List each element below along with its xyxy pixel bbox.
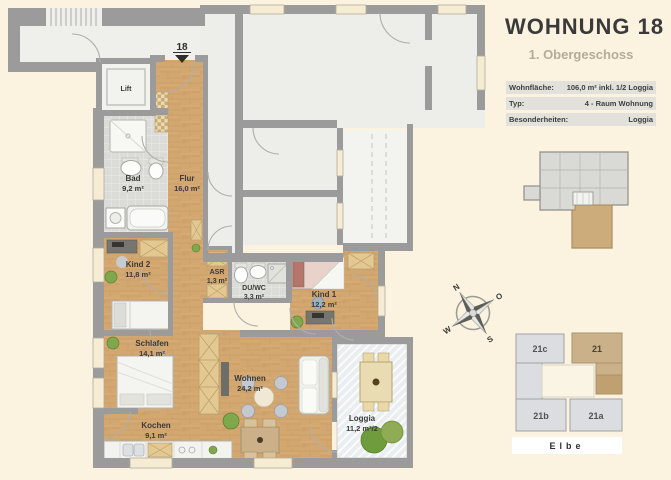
- room-label-kochen-name: Kochen: [141, 421, 170, 430]
- room-label-duwc-area: 3,3 m²: [244, 294, 265, 301]
- room-label-schlafen-area: 14,1 m²: [139, 349, 165, 358]
- neighbor-apartment-floors: [14, 13, 485, 253]
- room-label-bad-area: 9,2 m²: [122, 184, 144, 193]
- compass-north-label: N: [452, 282, 462, 293]
- floor-plan: Lift Bad 9,2 m² Flur 16,0 m² Kind 2 11,8…: [0, 0, 490, 480]
- info-value: 4 - Raum Wohnung: [585, 99, 653, 108]
- room-label-kind1-area: 12,2 m²: [311, 300, 337, 309]
- room-label-loggia-area: 11,2 m²/2: [346, 424, 378, 433]
- entrance-number: 18: [176, 42, 188, 53]
- room-label-flur-name: Flur: [179, 174, 194, 183]
- room-label-schlafen-name: Schlafen: [135, 339, 168, 348]
- room-label-kind2-area: 11,8 m²: [125, 270, 151, 279]
- room-label-asr-area: 1,3 m²: [207, 278, 228, 285]
- room-label-loggia-name: Loggia: [349, 414, 376, 423]
- site-building-west-wing: [516, 363, 542, 399]
- site-building-21-unit: [596, 375, 622, 394]
- page-title: WOHNUNG 18: [505, 14, 657, 40]
- info-label: Besonderheiten:: [509, 115, 568, 124]
- kitchen-counter: [104, 441, 232, 459]
- room-label-wohnen-area: 24,2 m²: [237, 384, 263, 393]
- site-label-21a: 21a: [588, 411, 604, 421]
- room-label-flur-area: 16,0 m²: [174, 184, 200, 193]
- compass-star-icon: [438, 278, 507, 347]
- compass-south-label: S: [485, 334, 495, 345]
- room-label-duwc-name: DU/WC: [242, 285, 266, 292]
- key-plan-highlight-unit: [572, 205, 612, 248]
- room-label-kind2-name: Kind 2: [126, 260, 151, 269]
- title-block: WOHNUNG 18 1. Obergeschoss: [505, 14, 657, 62]
- room-label-wohnen-name: Wohnen: [234, 374, 266, 383]
- info-table: Wohnfläche: 106,0 m² inkl. 1/2 Loggia Ty…: [506, 81, 656, 129]
- compass-east-label: O: [494, 291, 504, 302]
- compass-west-label: W: [442, 324, 454, 336]
- site-label-21b: 21b: [533, 411, 549, 421]
- schlafen-wardrobe-strip: [199, 334, 219, 414]
- staircase: [46, 8, 102, 26]
- room-label-bad-name: Bad: [125, 174, 140, 183]
- info-row-wohnflaeche: Wohnfläche: 106,0 m² inkl. 1/2 Loggia: [506, 81, 656, 94]
- room-label-asr-name: ASR: [210, 269, 225, 276]
- site-courtyard: [542, 365, 594, 397]
- room-label-kind1-name: Kind 1: [312, 290, 337, 299]
- compass-rose: N O S W: [436, 276, 510, 350]
- site-label-21c: 21c: [532, 344, 547, 354]
- page-subtitle: 1. Obergeschoss: [505, 47, 657, 62]
- room-label-lift: Lift: [121, 86, 133, 93]
- info-value: 106,0 m² inkl. 1/2 Loggia: [567, 83, 653, 92]
- info-label: Typ:: [509, 99, 524, 108]
- info-value: Loggia: [628, 115, 653, 124]
- floorplan-sheet: Lift Bad 9,2 m² Flur 16,0 m² Kind 2 11,8…: [0, 0, 671, 480]
- room-label-kochen-area: 9,1 m²: [145, 431, 167, 440]
- info-label: Wohnfläche:: [509, 83, 554, 92]
- site-map: 21c 21 21b 21a Elbe: [510, 331, 630, 461]
- river-label: Elbe: [549, 441, 584, 451]
- key-plan: [515, 146, 650, 256]
- info-row-besonderheiten: Besonderheiten: Loggia: [506, 113, 656, 126]
- key-plan-wing: [524, 186, 540, 200]
- site-label-21: 21: [592, 344, 602, 354]
- info-row-typ: Typ: 4 - Raum Wohnung: [506, 97, 656, 110]
